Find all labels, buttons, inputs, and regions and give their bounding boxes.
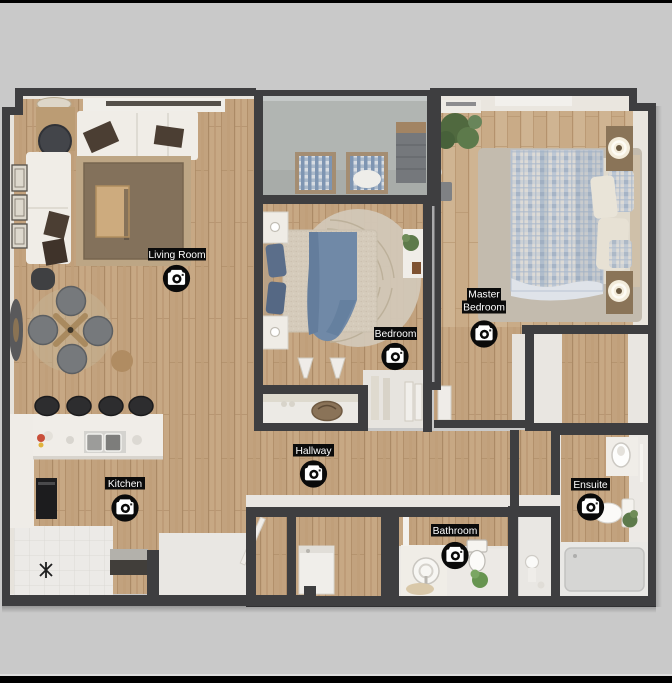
svg-text:Master: Master [468, 290, 500, 301]
svg-text:Bathroom: Bathroom [433, 526, 478, 537]
svg-text:Kitchen: Kitchen [108, 479, 143, 490]
svg-text:Living Room: Living Room [148, 250, 205, 261]
svg-text:Bedroom: Bedroom [463, 303, 505, 314]
svg-text:Hallway: Hallway [295, 446, 332, 457]
svg-text:Bedroom: Bedroom [375, 329, 417, 340]
svg-text:Ensuite: Ensuite [573, 480, 608, 491]
